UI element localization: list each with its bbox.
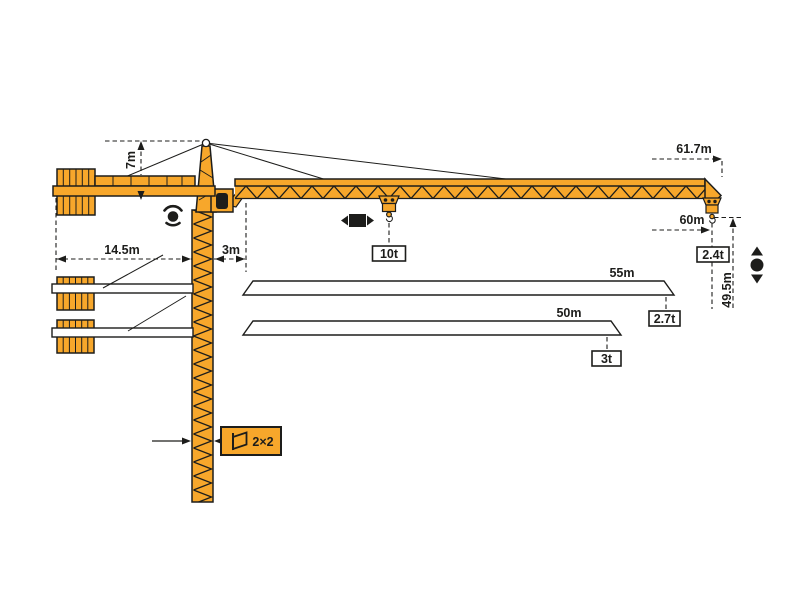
hook-tip <box>710 214 714 218</box>
jib-option-1-length-value: 55m <box>609 266 634 280</box>
counter-jib-beam <box>53 186 215 196</box>
max-capacity-value: 10t <box>380 247 399 261</box>
trolley-travel-icon <box>341 214 374 227</box>
trolley-tip <box>703 198 721 223</box>
jib-option-2-tip-load-value: 3t <box>601 352 613 366</box>
hook-travel-icon <box>751 247 764 284</box>
dimension-hook-radius: 60m <box>652 213 710 234</box>
jib-option-1-tip-load-value: 2.7t <box>654 312 676 326</box>
trolley-mid <box>379 196 399 222</box>
crane-diagram: 10t 2.4t 7m 14.5m 3m <box>0 0 800 600</box>
dimension-jib-offset: 3m <box>214 203 246 272</box>
jib-option-55m-bar <box>243 281 674 295</box>
jib-option-55m: 55m 2.7t <box>243 266 680 326</box>
cab-window <box>216 193 228 209</box>
jib-top-chord <box>235 179 705 186</box>
leader-line-option-2 <box>128 296 186 331</box>
hook-block-tip <box>706 205 718 213</box>
mast-section-callout: 2×2 <box>152 427 281 455</box>
dimension-max-radius: 61.7m <box>652 142 722 177</box>
jib-lattice <box>235 186 705 199</box>
jib-option-2-length-value: 50m <box>556 306 581 320</box>
counter-jib-length-value: 14.5m <box>104 243 139 257</box>
max-radius-value: 61.7m <box>676 142 711 156</box>
hook-radius-value: 60m <box>679 213 704 227</box>
hook-height-value: 49.5m <box>720 272 734 307</box>
jib-option-50m-bar <box>243 321 621 335</box>
crane-diagram-canvas: 10t 2.4t 7m 14.5m 3m <box>0 0 800 600</box>
jib-option-50m: 50m 3t <box>243 306 621 366</box>
tip-load-label: 2.4t <box>697 247 729 262</box>
counter-jib-platform <box>95 176 195 186</box>
counter-jib-beam-option-2 <box>52 328 193 337</box>
apex-pin <box>202 139 209 146</box>
tower-mast <box>192 210 213 502</box>
hook-mid <box>387 212 392 217</box>
hook-block-mid <box>383 204 396 212</box>
mast-section-value: 2×2 <box>252 435 273 449</box>
slewing-icon <box>165 206 182 225</box>
leader-line-option-1 <box>103 255 163 288</box>
jib-tip <box>705 179 721 199</box>
jib-offset-value: 3m <box>222 243 240 257</box>
counter-jib-beam-option-1 <box>52 284 193 293</box>
tip-load-value: 2.4t <box>702 248 724 262</box>
max-capacity-label: 10t <box>373 246 406 261</box>
counter-jib <box>53 169 215 215</box>
tower-head-height-value: 7m <box>124 151 138 169</box>
counterweight-option-55m <box>52 255 193 310</box>
main-jib <box>235 179 721 199</box>
